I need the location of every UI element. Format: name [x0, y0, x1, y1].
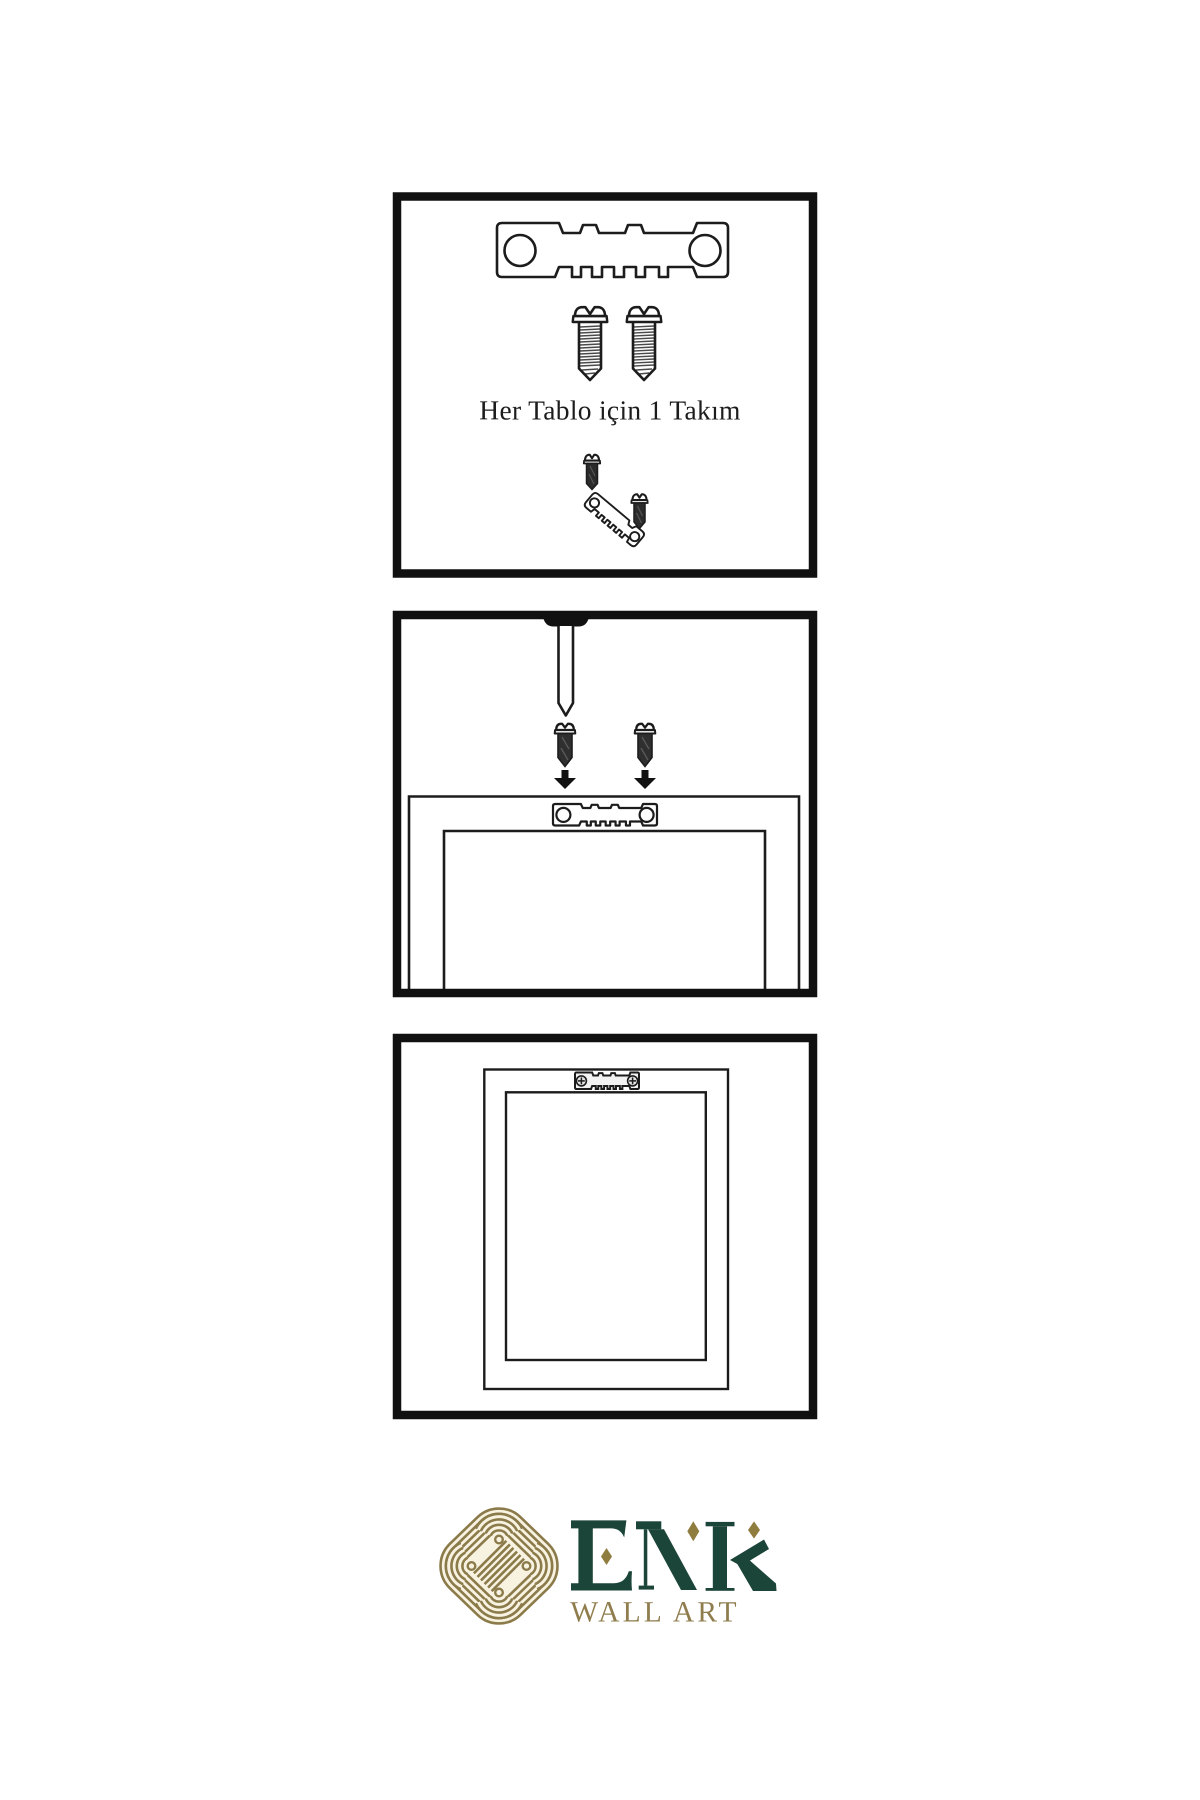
- svg-text:Her Tablo için 1 Takım: Her Tablo için 1 Takım: [479, 394, 740, 425]
- svg-text:WALL ART: WALL ART: [570, 1596, 739, 1628]
